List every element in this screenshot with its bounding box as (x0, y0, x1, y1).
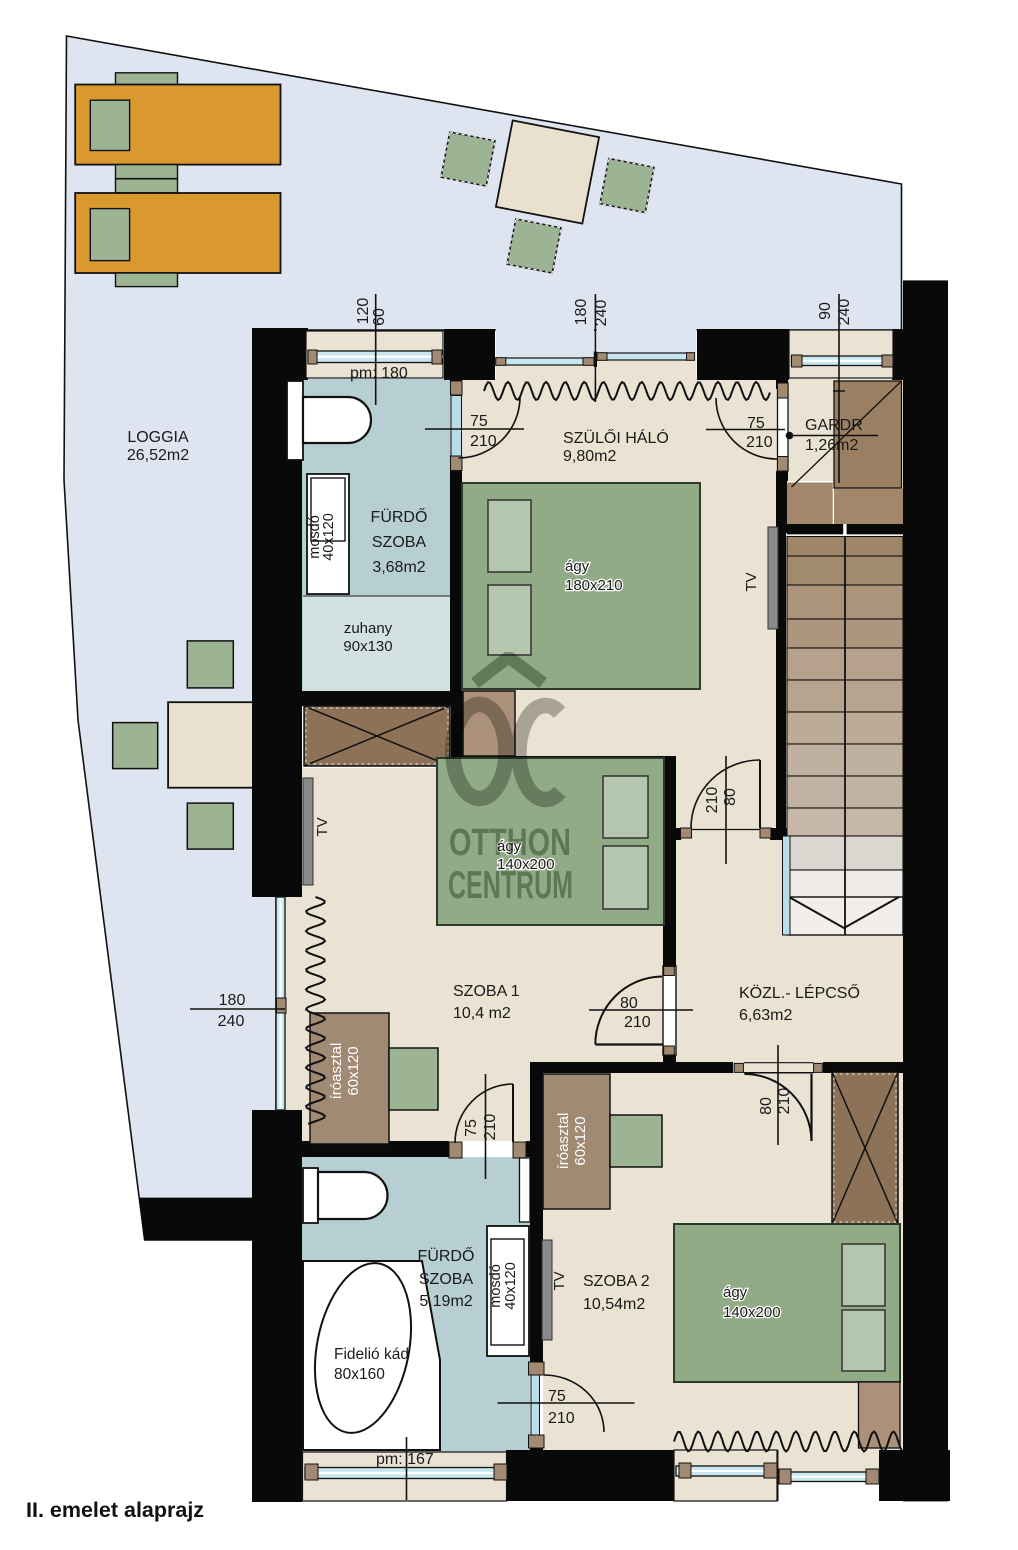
svg-text:210: 210 (704, 787, 721, 814)
svg-text:60x120: 60x120 (345, 1046, 362, 1095)
svg-text:90: 90 (817, 302, 834, 320)
svg-text:40x120: 40x120 (321, 513, 337, 561)
svg-text:SZOBA: SZOBA (372, 534, 427, 551)
svg-text:26,52m2: 26,52m2 (127, 447, 189, 464)
svg-text:OTTHON: OTTHON (449, 822, 571, 864)
svg-text:pm: 180: pm: 180 (350, 365, 408, 382)
svg-text:60: 60 (371, 308, 388, 326)
svg-text:120: 120 (355, 298, 372, 325)
svg-text:1,26m2: 1,26m2 (805, 437, 858, 454)
svg-text:10,54m2: 10,54m2 (583, 1296, 645, 1313)
svg-text:SZOBA: SZOBA (419, 1271, 474, 1288)
svg-text:180: 180 (573, 299, 590, 326)
svg-text:SZOBA 1: SZOBA 1 (453, 983, 520, 1000)
svg-text:10,4 m2: 10,4 m2 (453, 1005, 511, 1022)
svg-text:60x120: 60x120 (572, 1116, 589, 1165)
svg-text:210: 210 (470, 433, 497, 450)
svg-text:TV: TV (551, 1271, 568, 1290)
svg-text:Fidelió kád: Fidelió kád (334, 1346, 409, 1363)
svg-text:ágy: ágy (565, 558, 590, 575)
svg-text:FÜRDŐ: FÜRDŐ (418, 1246, 475, 1265)
svg-text:140x200: 140x200 (723, 1304, 781, 1321)
svg-text:pm: 167: pm: 167 (376, 1451, 434, 1468)
svg-text:6,63m2: 6,63m2 (739, 1007, 792, 1024)
svg-text:SZOBA 2: SZOBA 2 (583, 1273, 650, 1290)
svg-text:ágy: ágy (723, 1284, 748, 1301)
svg-text:210: 210 (548, 1410, 575, 1427)
svg-text:zuhany: zuhany (344, 620, 393, 637)
svg-text:TV: TV (743, 572, 760, 591)
svg-text:KÖZL.- LÉPCSŐ: KÖZL.- LÉPCSŐ (739, 983, 860, 1002)
svg-text:TV: TV (314, 817, 331, 836)
svg-text:CENTRUM: CENTRUM (448, 864, 573, 907)
svg-text:240: 240 (593, 300, 610, 327)
svg-text:240: 240 (218, 1013, 245, 1030)
svg-text:180x210: 180x210 (565, 577, 623, 594)
svg-text:180: 180 (219, 992, 246, 1009)
svg-text:80: 80 (758, 1097, 775, 1115)
svg-text:210: 210 (776, 1088, 793, 1115)
svg-text:75: 75 (470, 413, 488, 430)
svg-text:80: 80 (722, 788, 739, 806)
svg-text:II. emelet alaprajz: II. emelet alaprajz (26, 1498, 204, 1522)
svg-text:75: 75 (463, 1119, 480, 1137)
svg-text:3,68m2: 3,68m2 (372, 559, 425, 576)
svg-text:5,19m2: 5,19m2 (419, 1293, 472, 1310)
svg-text:210: 210 (624, 1014, 651, 1031)
svg-text:80x160: 80x160 (334, 1366, 385, 1383)
svg-text:LOGGIA: LOGGIA (127, 429, 189, 446)
svg-text:FÜRDŐ: FÜRDŐ (371, 507, 428, 526)
svg-text:210: 210 (482, 1114, 499, 1141)
svg-text:mosdó: mosdó (488, 1264, 504, 1308)
svg-text:SZÜLŐI HÁLÓ: SZÜLŐI HÁLÓ (563, 428, 669, 447)
svg-text:240: 240 (836, 299, 853, 326)
svg-text:90x130: 90x130 (343, 638, 392, 655)
svg-text:íróasztal: íróasztal (555, 1113, 572, 1170)
svg-text:210: 210 (746, 434, 773, 451)
svg-text:GARDR: GARDR (805, 417, 863, 434)
svg-text:40x120: 40x120 (503, 1262, 519, 1310)
svg-text:íróasztal: íróasztal (328, 1043, 345, 1100)
svg-text:9,80m2: 9,80m2 (563, 448, 616, 465)
